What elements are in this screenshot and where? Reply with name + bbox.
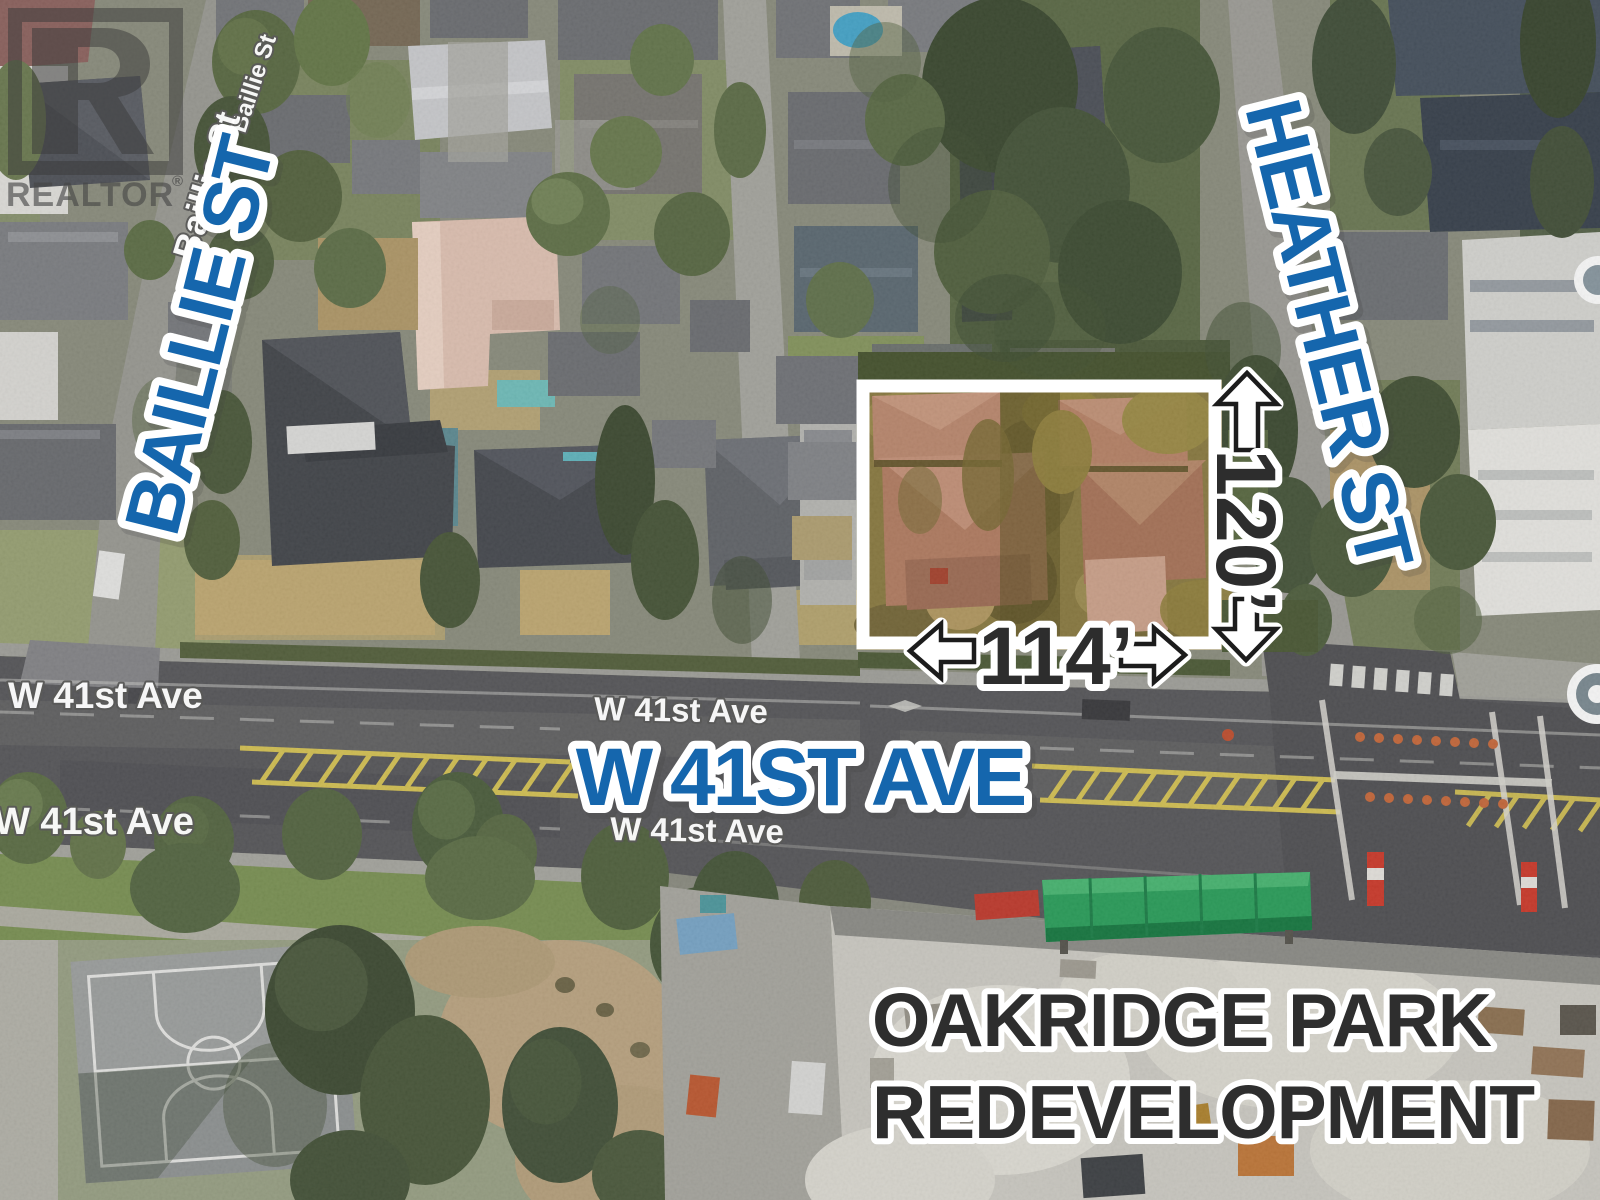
svg-text:W 41st Ave: W 41st Ave bbox=[8, 675, 203, 716]
svg-text:W 41st Ave: W 41st Ave bbox=[0, 801, 194, 843]
svg-text:W 41ST AVE: W 41ST AVE bbox=[576, 732, 1025, 823]
svg-text:®: ® bbox=[172, 173, 183, 190]
svg-text:114’: 114’ bbox=[978, 611, 1133, 702]
svg-text:W 41st Ave: W 41st Ave bbox=[594, 690, 768, 730]
svg-text:120’: 120’ bbox=[1199, 449, 1293, 613]
svg-text:REDEVELOPMENT: REDEVELOPMENT bbox=[872, 1070, 1534, 1154]
svg-text:OAKRIDGE PARK: OAKRIDGE PARK bbox=[872, 978, 1492, 1062]
svg-text:REALTOR: REALTOR bbox=[6, 176, 174, 214]
